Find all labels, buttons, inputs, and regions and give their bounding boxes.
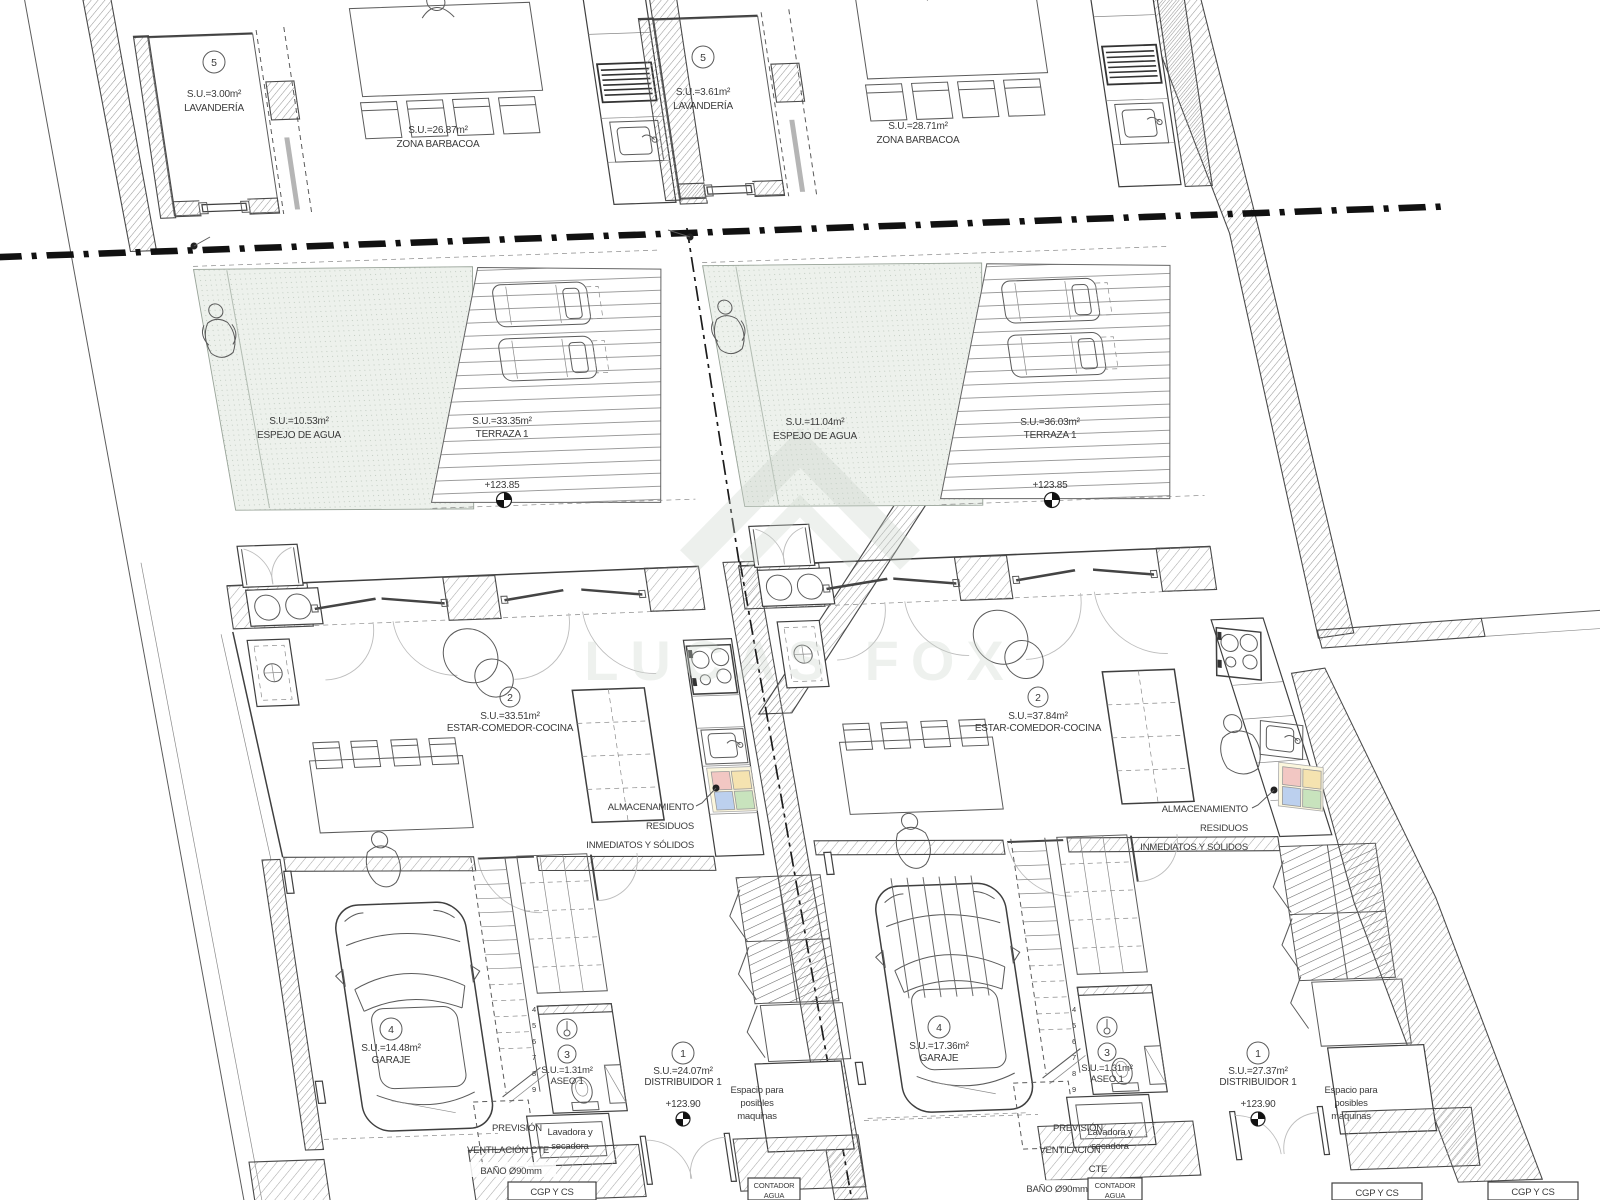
bano-label: BAÑO Ø90mm (1026, 1184, 1088, 1195)
contador-line2: AGUA (764, 1191, 785, 1200)
estar-name: ESTAR-COMEDOR-COCINA (975, 723, 1102, 734)
aseo-name: ASEO 1 (550, 1076, 583, 1087)
stair-num: 4 (532, 1005, 536, 1014)
espejo-su: S.U.=10.53m² (269, 416, 329, 427)
estar-name: ESTAR-COMEDOR-COCINA (447, 723, 574, 734)
garaje-su: S.U.=14.48m² (361, 1043, 421, 1054)
terraza-elevation: +123.85 (484, 480, 520, 491)
lavanderia-su: S.U.=3.00m² (187, 89, 242, 100)
espacio-line2: posibles (740, 1098, 774, 1109)
garaje-name: GARAJE (920, 1053, 959, 1064)
prevision-line3: CTE (1089, 1164, 1107, 1175)
prevision-line1: PREVISIÓN (492, 1123, 542, 1134)
lavadora-line2: secadora (1091, 1141, 1129, 1152)
barbacoa-su: S.U.=28.71m² (888, 121, 948, 132)
stair-num: 8 (1072, 1069, 1076, 1078)
espejo-su: S.U.=11.04m² (786, 417, 846, 428)
contador-line1: CONTADOR (754, 1181, 796, 1190)
floorplan-page: LUCAS FOX 5 S.U.=3.00m² LAVANDERÍA S.U.=… (0, 0, 1600, 1200)
level-marker-icon (1251, 1112, 1265, 1126)
distribuidor-name: DISTRIBUIDOR 1 (644, 1077, 722, 1088)
distribuidor-elevation: +123.90 (665, 1099, 701, 1110)
room-number: 4 (936, 1022, 942, 1034)
barbacoa-name: ZONA BARBACOA (877, 135, 961, 146)
unit-left-pool-terrace (192, 250, 695, 517)
almacenamiento-line2: RESIDUOS (1200, 823, 1248, 834)
bano-label: BAÑO Ø90mm (480, 1166, 542, 1177)
room-number: 5 (700, 52, 706, 64)
lavadora-line1: Lavadora y (1087, 1127, 1132, 1138)
terraza-su: S.U.=36.03m² (1020, 417, 1080, 428)
level-marker-icon (497, 493, 512, 508)
distribuidor-su: S.U.=27.37m² (1228, 1066, 1288, 1077)
lavanderia-name: LAVANDERÍA (673, 99, 733, 112)
contador-line1: CONTADOR (1095, 1181, 1137, 1190)
espejo-name: ESPEJO DE AGUA (257, 430, 341, 441)
cgp-label: CGP Y CS (530, 1187, 573, 1198)
room-number: 5 (211, 57, 217, 69)
contador-line2: AGUA (1105, 1191, 1126, 1200)
room-number: 1 (1255, 1048, 1261, 1060)
stair-num: 5 (1072, 1021, 1076, 1030)
neighbor-cgp: CGP Y CS (1488, 1182, 1578, 1200)
almacenamiento-line2: RESIDUOS (646, 821, 694, 832)
room-number: 1 (680, 1048, 686, 1060)
terraza-elevation: +123.85 (1032, 480, 1068, 491)
stair-num: 8 (532, 1069, 536, 1078)
aseo-su: S.U.=1.31m² (1081, 1063, 1132, 1074)
stair-num: 7 (532, 1053, 536, 1062)
espacio-line3: maquinas (1331, 1111, 1371, 1122)
espacio-line2: posibles (1334, 1098, 1368, 1109)
terraza-su: S.U.=33.35m² (472, 416, 532, 427)
almacenamiento-line3: INMEDIATOS Y SÓLIDOS (586, 840, 694, 851)
barbacoa-name: ZONA BARBACOA (397, 139, 481, 150)
almacenamiento-line1: ALMACENAMIENTO (1162, 804, 1248, 815)
terraza-name: TERRAZA 1 (1024, 430, 1077, 441)
cgp-label: CGP Y CS (1511, 1187, 1554, 1198)
terraza-name: TERRAZA 1 (476, 429, 529, 440)
stair-num: 6 (532, 1037, 536, 1046)
espacio-line1: Espacio para (1324, 1085, 1378, 1096)
level-marker-icon (1045, 493, 1060, 508)
prevision-line2: VENTILACIÓN CTE (467, 1145, 549, 1156)
lavanderia-name: LAVANDERÍA (184, 101, 244, 114)
room-number: 2 (1035, 692, 1041, 704)
stair-num: 9 (1072, 1085, 1076, 1094)
stair-num: 4 (1072, 1005, 1076, 1014)
plan-geometry (0, 0, 1600, 1200)
estar-su: S.U.=37.84m² (1008, 711, 1068, 722)
espacio-line3: maquinas (737, 1111, 777, 1122)
room-number: 3 (564, 1049, 570, 1061)
lavanderia-su: S.U.=3.61m² (676, 87, 731, 98)
stair-num: 6 (1072, 1037, 1076, 1046)
lavadora-line1: Lavadora y (547, 1127, 592, 1138)
almacenamiento-line3: INMEDIATOS Y SÓLIDOS (1140, 842, 1248, 853)
stair-num: 5 (532, 1021, 536, 1030)
almacenamiento-line1: ALMACENAMIENTO (608, 802, 694, 813)
room-number: 3 (1104, 1047, 1110, 1059)
aseo-name: ASEO 1 (1090, 1074, 1123, 1085)
estar-su: S.U.=33.51m² (480, 711, 540, 722)
stair-num: 7 (1072, 1053, 1076, 1062)
distribuidor-name: DISTRIBUIDOR 1 (1219, 1077, 1297, 1088)
barbacoa-su: S.U.=26.87m² (408, 125, 468, 136)
level-marker-icon (676, 1112, 690, 1126)
distribuidor-su: S.U.=24.07m² (653, 1066, 713, 1077)
floorplan-drawing: LUCAS FOX 5 S.U.=3.00m² LAVANDERÍA S.U.=… (0, 0, 1600, 1200)
garaje-su: S.U.=17.36m² (909, 1041, 969, 1052)
aseo-su: S.U.=1.31m² (541, 1065, 592, 1076)
espacio-line1: Espacio para (730, 1085, 784, 1096)
room-number: 4 (388, 1024, 394, 1036)
watermark-text: LUCAS FOX (584, 629, 1016, 692)
distribuidor-elevation: +123.90 (1240, 1099, 1276, 1110)
stair-numbers-right: 4 5 6 7 8 9 (1072, 1005, 1076, 1094)
lavadora-line2: secadora (551, 1141, 589, 1152)
cgp-label: CGP Y CS (1355, 1188, 1398, 1199)
room-number: 2 (507, 692, 513, 704)
stair-num: 9 (532, 1085, 536, 1094)
garaje-name: GARAJE (372, 1055, 411, 1066)
espejo-name: ESPEJO DE AGUA (773, 431, 857, 442)
